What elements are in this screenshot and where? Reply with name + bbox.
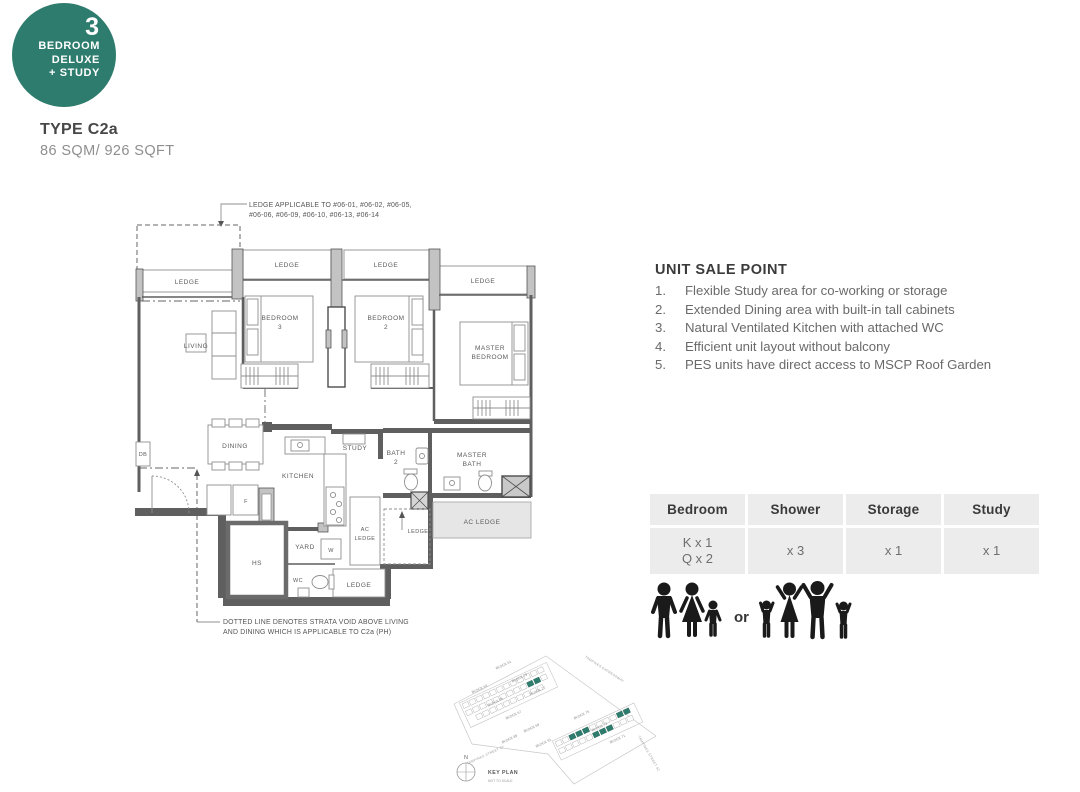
sale-point-number: 2. xyxy=(655,301,685,320)
block-labels: BLOCK 61 BLOCK 79 BLOCK 77 BLOCK 63 BLOC… xyxy=(471,660,626,749)
ac-ledge-center-label-2: LEDGE xyxy=(355,536,376,542)
block-label: BLOCK 75 xyxy=(573,710,590,721)
unit-area-label: 86 SQM/ 926 SQFT xyxy=(40,143,175,159)
sale-points-list: 1. Flexible Study area for co-working or… xyxy=(655,282,1065,375)
badge-line-2: DELUXE xyxy=(38,54,100,68)
ac-ledge-right: AC LEDGE xyxy=(433,502,531,538)
bedroom-2: BEDROOM 2 xyxy=(355,296,429,388)
yard-label: YARD xyxy=(295,544,315,551)
sale-point-item: 2. Extended Dining area with built-in ta… xyxy=(655,301,1065,320)
key-plan-title: KEY PLAN xyxy=(488,770,518,776)
master-bath-label-2: BATH xyxy=(463,461,482,468)
master-bath-label-1: MASTER xyxy=(457,452,487,459)
badge-line-3: + STUDY xyxy=(38,67,100,81)
entrance-door xyxy=(152,476,189,513)
block-label: BLOCK 63 xyxy=(471,684,488,695)
ac-ledge-right-label: AC LEDGE xyxy=(464,519,501,526)
block-label: BLOCK 67 xyxy=(505,710,522,721)
bath2-number: 2 xyxy=(394,459,398,466)
block-label: BLOCK 91 xyxy=(535,738,552,749)
sale-point-text: PES units have direct access to MSCP Roo… xyxy=(685,356,991,375)
washer-label: W xyxy=(328,548,334,554)
bath2-label: BATH xyxy=(387,450,406,457)
block-label: BLOCK 69 xyxy=(523,723,540,734)
ac-ledge-center: AC LEDGE xyxy=(350,497,380,565)
badge-text: 3 BEDROOM DELUXE + STUDY xyxy=(38,14,100,81)
spec-header-study: Study xyxy=(944,494,1039,525)
sale-point-text: Natural Ventilated Kitchen with attached… xyxy=(685,319,944,338)
spec-header-storage: Storage xyxy=(846,494,941,525)
spec-header-shower: Shower xyxy=(748,494,843,525)
bath-2: BATH 2 xyxy=(387,448,428,490)
ledge-note: LEDGE APPLICABLE TO #06-01, #06-02, #06-… xyxy=(218,202,412,227)
ledge-bottom-label: LEDGE xyxy=(347,582,372,589)
child-figure xyxy=(706,601,720,636)
family-of-three-icon xyxy=(648,582,726,640)
ledge-note-line2: #06-06, #06-09, #06-10, #06-13, #06-14 xyxy=(249,212,379,219)
yard: YARD W xyxy=(295,539,341,559)
bedroom-3: BEDROOM 3 xyxy=(241,296,313,388)
living-label: LIVING xyxy=(184,343,208,350)
spec-value-storage: x 1 xyxy=(846,528,941,574)
dining-label: DINING xyxy=(222,443,248,450)
ledge-label-left: LEDGE xyxy=(175,279,200,286)
spec-value-study: x 1 xyxy=(944,528,1039,574)
sale-point-number: 4. xyxy=(655,338,685,357)
north-label: N xyxy=(464,755,468,761)
strata-note-line1: DOTTED LINE DENOTES STRATA VOID ABOVE LI… xyxy=(223,619,409,626)
block-label: BLOCK 71 xyxy=(609,734,626,745)
strata-note-line2: AND DINING WHICH IS APPLICABLE TO C2a (P… xyxy=(223,629,391,636)
ledge-small-label: LEDGE xyxy=(408,529,429,535)
sale-points-title: UNIT SALE POINT xyxy=(655,262,787,278)
ledge-bottom: LEDGE xyxy=(333,569,385,597)
hs-label: HS xyxy=(252,560,262,567)
ledge-label-master: LEDGE xyxy=(471,278,496,285)
block-label: BLOCK 89 xyxy=(501,734,518,745)
living-room: LIVING xyxy=(184,311,236,379)
master-bedroom-label-1: MASTER xyxy=(475,345,505,352)
spec-value-bedroom: K x 1 Q x 2 xyxy=(650,528,745,574)
master-bedroom: MASTER BEDROOM xyxy=(460,322,530,419)
badge-line-1: BEDROOM xyxy=(38,40,100,54)
sale-point-item: 5. PES units have direct access to MSCP … xyxy=(655,356,1065,375)
ac-ledge-center-label-1: AC xyxy=(361,527,369,533)
spec-bedroom-line2: Q x 2 xyxy=(682,551,713,567)
bedroom-3-number: 3 xyxy=(278,324,282,331)
occupancy-icons: or xyxy=(648,580,857,640)
road-label-street-left: TAMPINES STREET 62 xyxy=(466,745,504,766)
master-bath: MASTER BATH xyxy=(444,452,530,497)
unit-type-title: TYPE C2a xyxy=(40,121,118,139)
spec-table: Bedroom Shower Storage Study K x 1 Q x 2… xyxy=(650,494,1039,574)
adult-woman-figure xyxy=(778,583,802,637)
bedroom-2-label: BEDROOM xyxy=(367,315,404,322)
ledge-label-bed2: LEDGE xyxy=(374,262,399,269)
sale-point-text: Efficient unit layout without balcony xyxy=(685,338,890,357)
page-root: { "badge": { "number": "3", "lines": ["B… xyxy=(0,0,1080,792)
db-label: DB xyxy=(139,452,147,458)
adult-man-figure xyxy=(653,583,675,637)
adult-woman-figure xyxy=(681,583,703,636)
spec-bedroom-line1: K x 1 xyxy=(683,535,713,551)
road-labels: TAMPINES EXPRESSWAY TAMPINES STREET 62 T… xyxy=(466,655,660,772)
block-label: BLOCK 61 xyxy=(495,660,512,671)
family-of-four-icon xyxy=(757,580,857,640)
sale-point-item: 3. Natural Ventilated Kitchen with attac… xyxy=(655,319,1065,338)
household-shelter: HS xyxy=(228,523,286,597)
strata-note: DOTTED LINE DENOTES STRATA VOID ABOVE LI… xyxy=(197,619,409,636)
or-label: or xyxy=(734,609,749,626)
bedroom-2-number: 2 xyxy=(384,324,388,331)
spec-value-shower: x 3 xyxy=(748,528,843,574)
master-bedroom-label-2: BEDROOM xyxy=(471,354,508,361)
ledge-arrow-callout: LEDGE xyxy=(384,492,430,564)
ledge-label-bed3: LEDGE xyxy=(275,262,300,269)
study: STUDY xyxy=(343,434,368,452)
unit-type-badge: 3 BEDROOM DELUXE + STUDY xyxy=(12,3,116,107)
floor-plan: LEDGE APPLICABLE TO #06-01, #06-02, #06-… xyxy=(128,192,573,670)
key-plan-subtitle: NOT TO SCALE xyxy=(488,779,513,783)
sale-point-text: Extended Dining area with built-in tall … xyxy=(685,301,955,320)
sale-point-item: 1. Flexible Study area for co-working or… xyxy=(655,282,1065,301)
sale-point-number: 1. xyxy=(655,282,685,301)
fridge-label: F xyxy=(244,499,248,505)
ledge-note-line1: LEDGE APPLICABLE TO #06-01, #06-02, #06-… xyxy=(249,202,412,209)
key-plan: BLOCK 61 BLOCK 79 BLOCK 77 BLOCK 63 BLOC… xyxy=(452,642,664,792)
sale-point-number: 5. xyxy=(655,356,685,375)
wc: WC xyxy=(293,575,334,597)
badge-number: 3 xyxy=(38,14,100,40)
adult-man-figure xyxy=(804,581,832,637)
wc-label: WC xyxy=(293,578,303,584)
child-figure xyxy=(837,602,850,638)
study-label: STUDY xyxy=(343,445,368,452)
kitchen-label: KITCHEN xyxy=(282,473,314,480)
sale-point-number: 3. xyxy=(655,319,685,338)
dining-area: DINING DB xyxy=(136,419,263,470)
bedroom-3-label: BEDROOM xyxy=(261,315,298,322)
child-figure xyxy=(761,601,774,637)
sale-point-item: 4. Efficient unit layout without balcony xyxy=(655,338,1065,357)
road-label-expressway: TAMPINES EXPRESSWAY xyxy=(584,655,625,684)
sale-point-text: Flexible Study area for co-working or st… xyxy=(685,282,947,301)
spec-header-bedroom: Bedroom xyxy=(650,494,745,525)
